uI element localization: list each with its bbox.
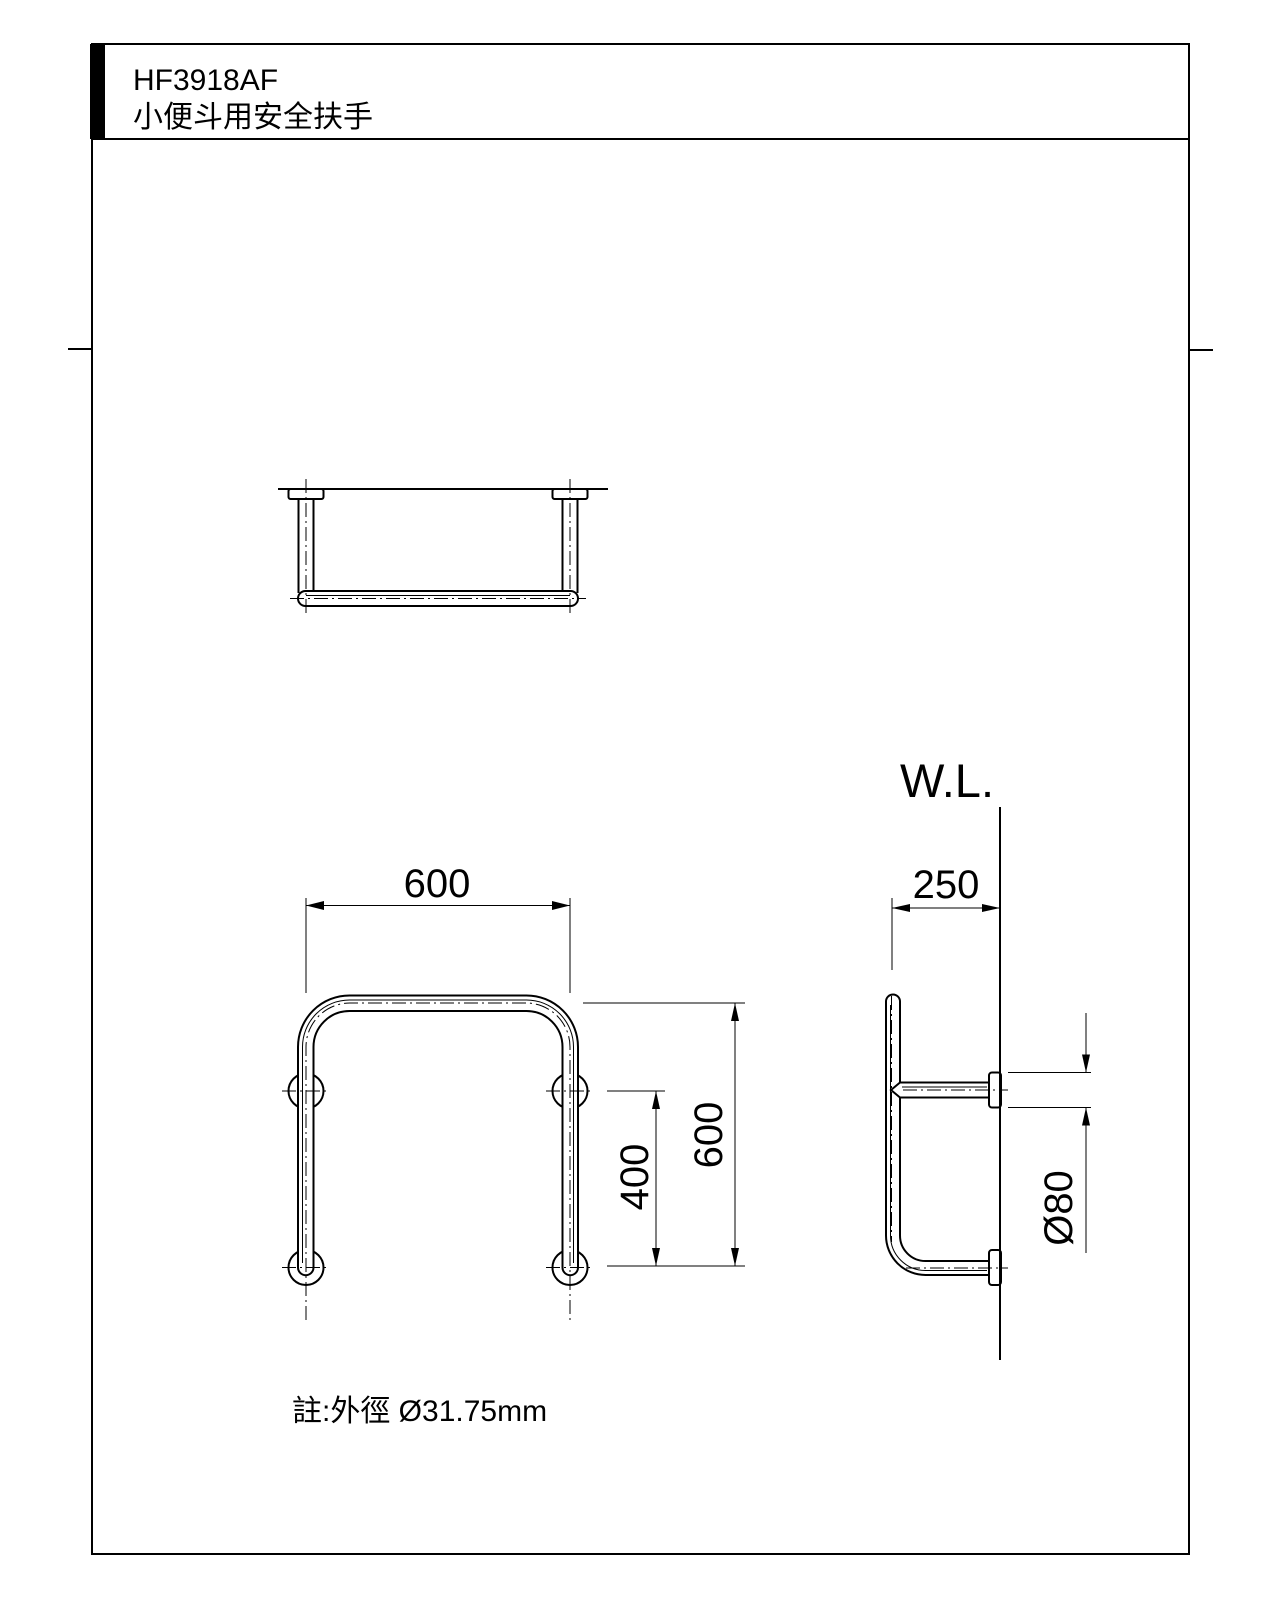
drawing-sheet: HF3918AF 小便斗用安全扶手 (0, 0, 1280, 1600)
dim-arrow (731, 1248, 739, 1266)
front-view-tube (298, 996, 578, 1276)
water-line-label: W.L. (900, 754, 994, 807)
model-number: HF3918AF (133, 64, 278, 97)
front-view: 600 400 600 (282, 862, 745, 1320)
dim-front-width: 600 (404, 862, 471, 906)
dim-arrow (552, 901, 570, 910)
dim-arrow (652, 1248, 660, 1266)
front-view-tube-highlight (303, 1000, 574, 1263)
dim-arrow (1082, 1055, 1090, 1073)
dim-arrow (306, 901, 324, 910)
product-name: 小便斗用安全扶手 (133, 101, 373, 134)
dim-arrow (1082, 1108, 1090, 1126)
dim-arrow (892, 904, 910, 912)
dim-front-total-height: 600 (687, 1102, 731, 1169)
sheet-frame (92, 44, 1189, 1554)
outer-diameter-note: 註:外徑 Ø31.75mm (292, 1395, 547, 1428)
top-view (278, 479, 608, 617)
side-tube-outer-edge (886, 1002, 989, 1276)
side-mid-arm-joint (891, 1083, 900, 1098)
front-view-tube-centerline (306, 1003, 570, 1320)
title-block-bar (90, 44, 105, 139)
dim-flange-diameter: Ø80 (1037, 1170, 1081, 1246)
dim-side-depth: 250 (913, 863, 980, 907)
side-tube-inner-edge (900, 1002, 989, 1262)
dim-front-lower-height: 400 (613, 1144, 657, 1211)
dim-arrow (731, 1003, 739, 1021)
side-view: W.L. 250 Ø80 (886, 754, 1091, 1360)
side-tube-top-cap (886, 995, 900, 1002)
dim-arrow (982, 904, 1000, 912)
dim-arrow (652, 1091, 660, 1109)
cad-drawing: HF3918AF 小便斗用安全扶手 (0, 0, 1280, 1600)
side-tube-highlight (891, 1005, 988, 1271)
